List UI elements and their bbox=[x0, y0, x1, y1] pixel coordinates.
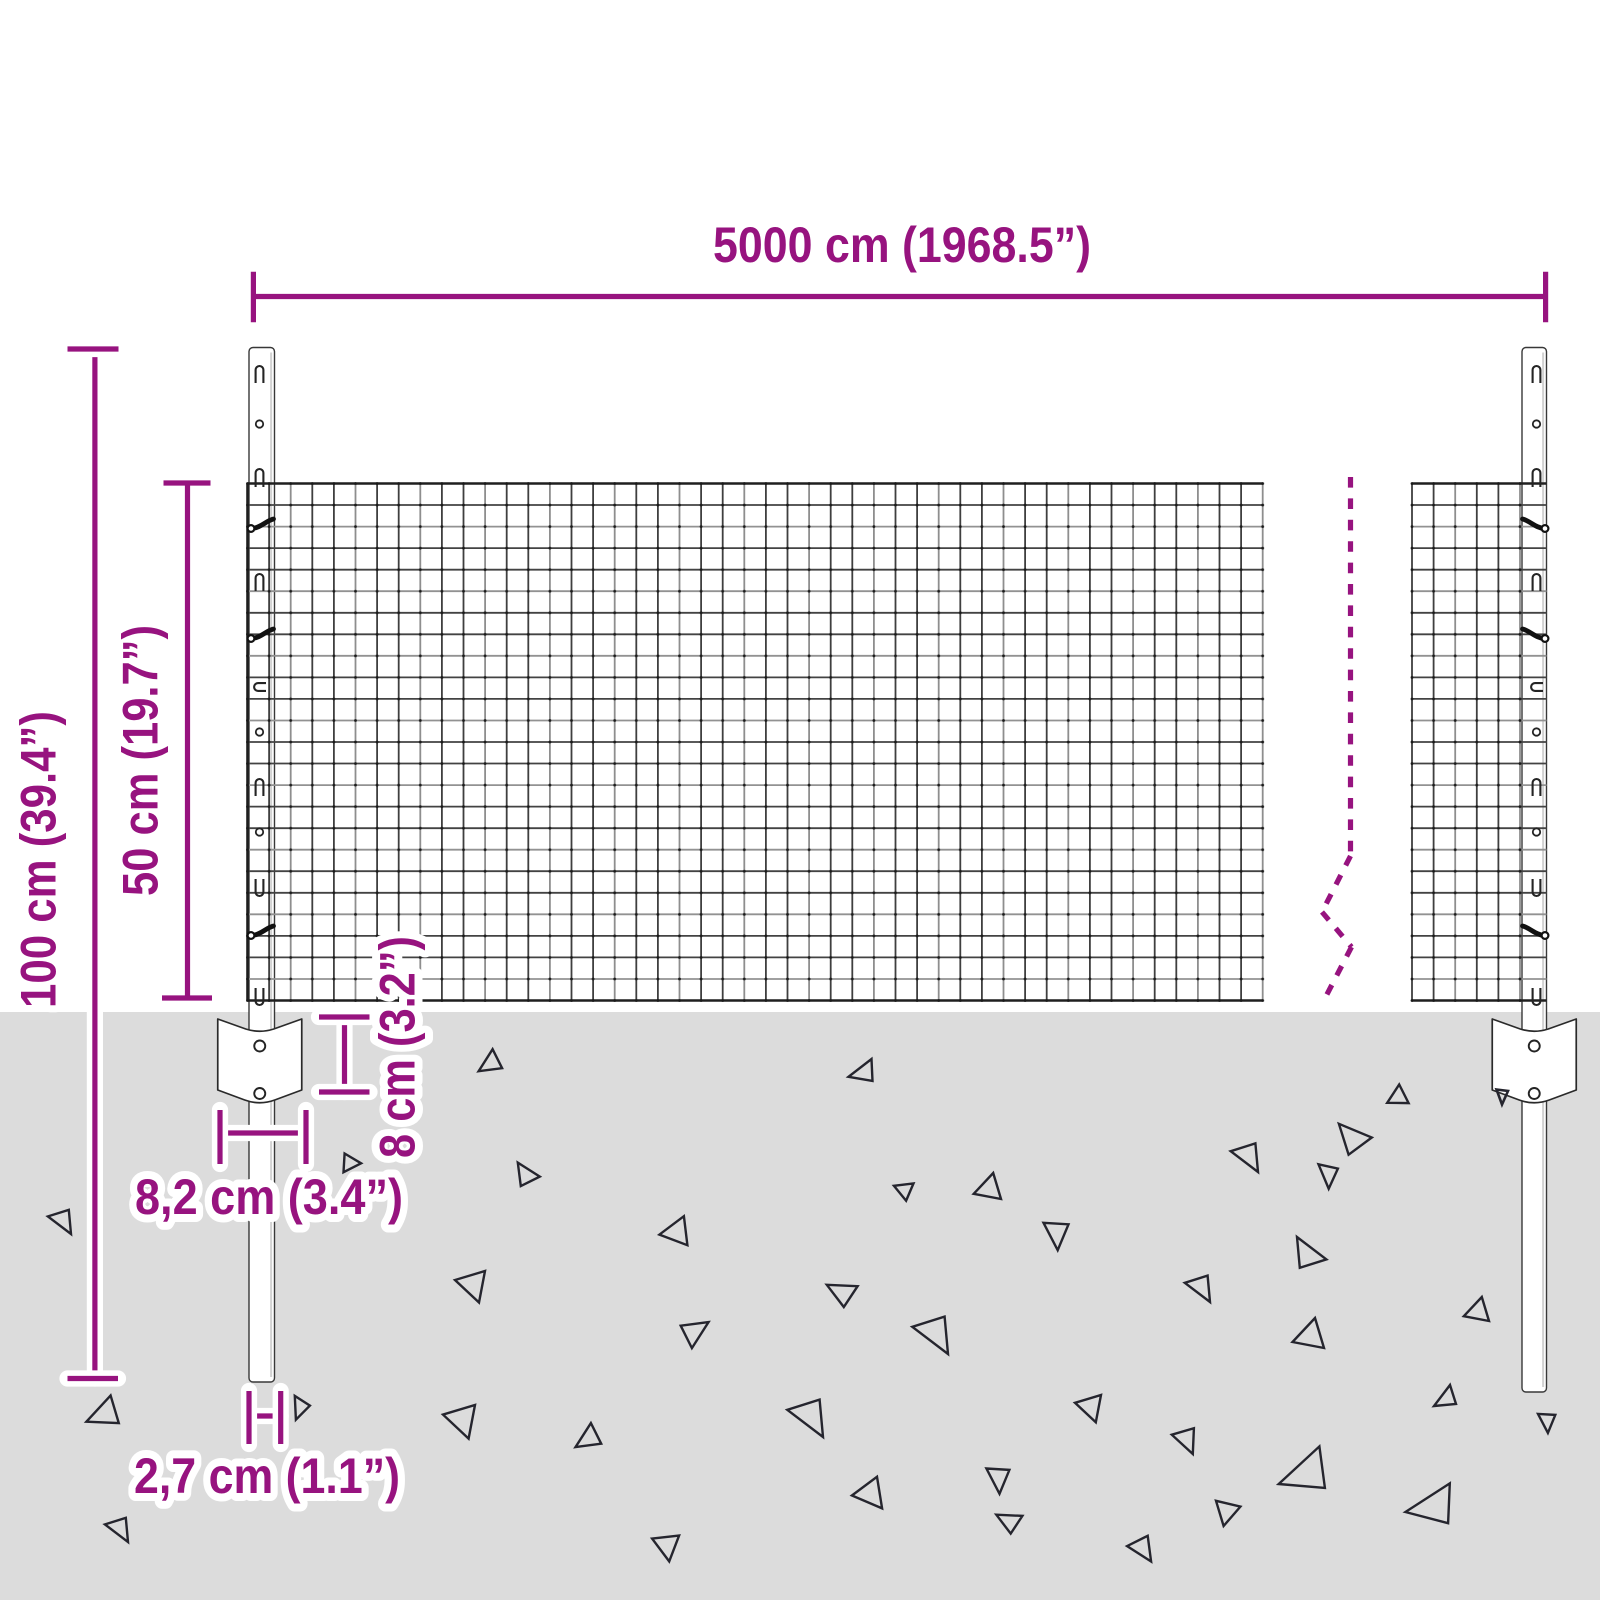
svg-text:8,2 cm (3.4”): 8,2 cm (3.4”) bbox=[135, 1169, 403, 1225]
svg-text:8 cm (3.2”): 8 cm (3.2”) bbox=[370, 936, 426, 1158]
svg-text:50 cm (19.7”): 50 cm (19.7”) bbox=[113, 625, 169, 896]
svg-text:2,7 cm (1.1”): 2,7 cm (1.1”) bbox=[134, 1448, 400, 1504]
svg-text:5000 cm (1968.5”): 5000 cm (1968.5”) bbox=[713, 217, 1091, 273]
svg-text:100 cm (39.4”): 100 cm (39.4”) bbox=[11, 711, 67, 1008]
